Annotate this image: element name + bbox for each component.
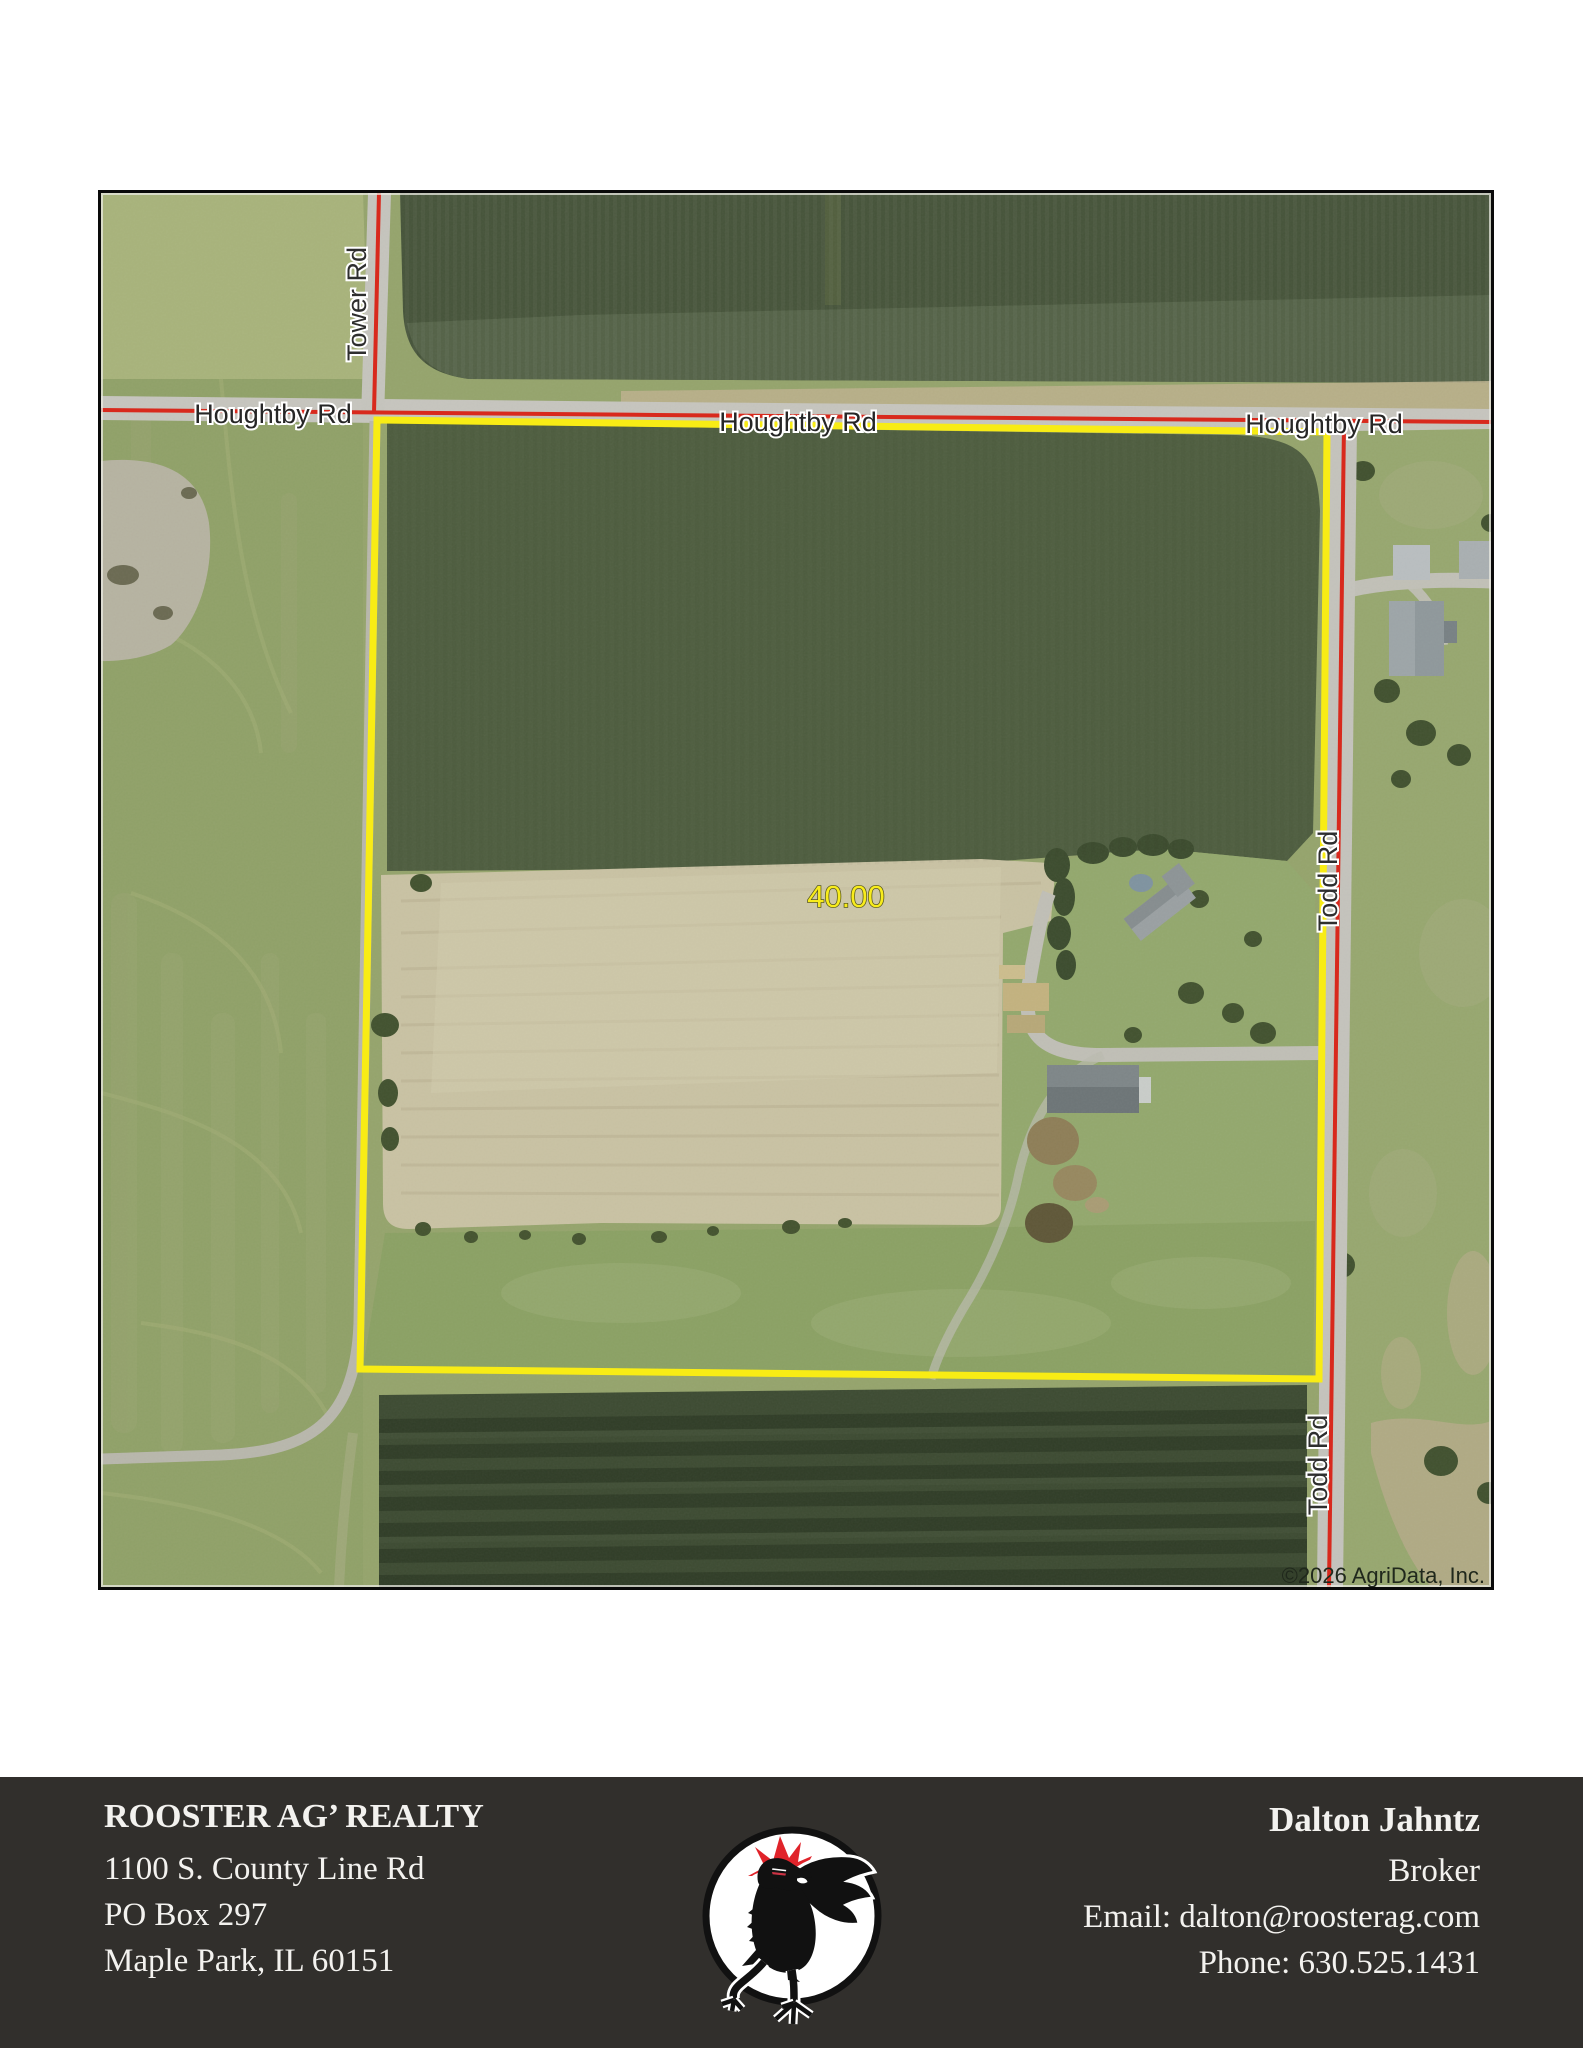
svg-text:Houghtby Rd: Houghtby Rd — [194, 399, 352, 429]
svg-text:40.00: 40.00 — [807, 879, 885, 914]
svg-text:©2026 AgriData, Inc.: ©2026 AgriData, Inc. — [1282, 1563, 1485, 1587]
svg-text:Tower Rd: Tower Rd — [342, 247, 372, 361]
svg-text:Todd Rd: Todd Rd — [1303, 1415, 1333, 1516]
svg-text:Houghtby Rd: Houghtby Rd — [719, 407, 877, 437]
svg-text:Todd Rd: Todd Rd — [1313, 831, 1343, 932]
svg-text:Houghtby Rd: Houghtby Rd — [1245, 409, 1403, 439]
